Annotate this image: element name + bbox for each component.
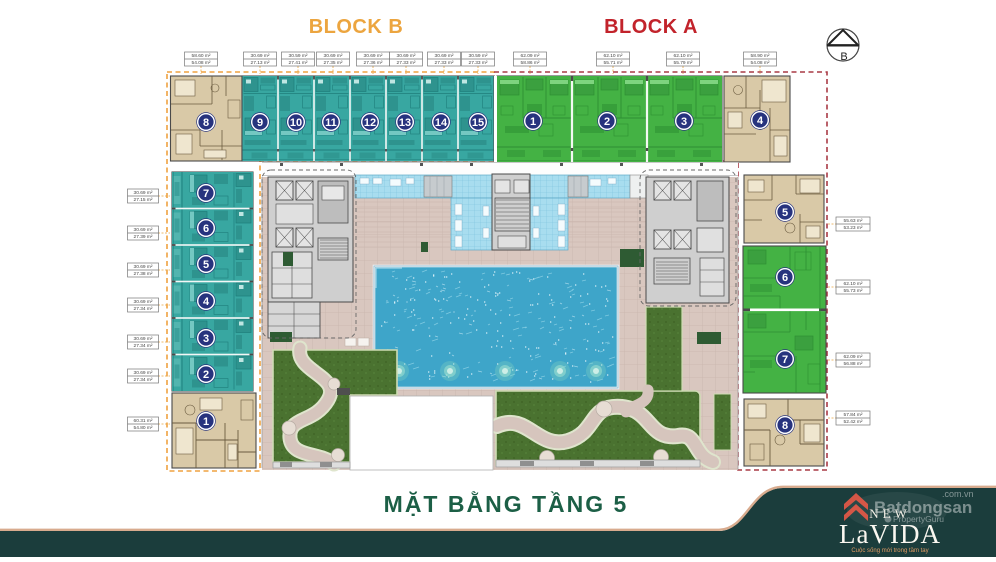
svg-text:62.09 m²: 62.09 m² (844, 354, 863, 360)
svg-text:60.31 m²: 60.31 m² (134, 418, 153, 424)
svg-text:55.71 m²: 55.71 m² (604, 60, 623, 66)
svg-text:27.13 m²: 27.13 m² (251, 60, 270, 66)
svg-text:58.60 m²: 58.60 m² (192, 53, 211, 59)
svg-text:54.80 m²: 54.80 m² (134, 425, 153, 431)
svg-text:56.88 m²: 56.88 m² (844, 361, 863, 367)
svg-text:27.35 m²: 27.35 m² (324, 60, 343, 66)
svg-text:2: 2 (604, 116, 610, 128)
svg-text:1: 1 (530, 116, 536, 128)
svg-text:Cuộc sống mới trong tầm tay: Cuộc sống mới trong tầm tay (851, 548, 928, 554)
svg-text:9: 9 (257, 117, 263, 129)
svg-text:54.08 m²: 54.08 m² (751, 60, 770, 66)
svg-text:2: 2 (203, 369, 209, 381)
svg-text:5: 5 (203, 259, 209, 271)
svg-text:53.23 m²: 53.23 m² (844, 225, 863, 231)
svg-text:4: 4 (203, 296, 210, 308)
svg-text:12: 12 (364, 117, 376, 129)
svg-text:6: 6 (203, 223, 209, 235)
svg-text:10: 10 (290, 117, 302, 129)
svg-text:30.69 m²: 30.69 m² (134, 190, 153, 196)
svg-text:4: 4 (757, 115, 764, 127)
svg-text:7: 7 (782, 354, 788, 366)
svg-text:57.84 m²: 57.84 m² (844, 412, 863, 418)
svg-text:14: 14 (435, 117, 448, 129)
svg-text:55.73 m²: 55.73 m² (844, 288, 863, 294)
svg-text:3: 3 (203, 333, 209, 345)
svg-text:30.69 m²: 30.69 m² (251, 53, 270, 59)
svg-text:27.41 m²: 27.41 m² (289, 60, 308, 66)
svg-text:LaVIDA: LaVIDA (839, 519, 941, 549)
svg-text:27.15 m²: 27.15 m² (134, 197, 153, 203)
svg-text:27.38 m²: 27.38 m² (134, 271, 153, 277)
svg-text:15: 15 (472, 117, 484, 129)
svg-text:30.69 m²: 30.69 m² (397, 53, 416, 59)
svg-text:30.69 m²: 30.69 m² (324, 53, 343, 59)
svg-text:62.10 m²: 62.10 m² (674, 53, 693, 59)
svg-text:BLOCK B: BLOCK B (309, 16, 404, 38)
svg-text:54.08 m²: 54.08 m² (192, 60, 211, 66)
svg-text:58.86 m²: 58.86 m² (521, 60, 540, 66)
svg-text:8: 8 (203, 117, 209, 129)
svg-text:27.34 m²: 27.34 m² (134, 377, 153, 383)
svg-text:30.59 m²: 30.59 m² (469, 53, 488, 59)
svg-text:7: 7 (203, 188, 209, 200)
svg-text:30.69 m²: 30.69 m² (435, 53, 454, 59)
svg-text:13: 13 (399, 117, 411, 129)
svg-text:30.69 m²: 30.69 m² (364, 53, 383, 59)
svg-text:27.33 m²: 27.33 m² (435, 60, 454, 66)
svg-text:B: B (840, 51, 847, 63)
svg-text:30.59 m²: 30.59 m² (289, 53, 308, 59)
svg-text:27.33 m²: 27.33 m² (469, 60, 488, 66)
svg-text:55.79 m²: 55.79 m² (674, 60, 693, 66)
svg-text:27.34 m²: 27.34 m² (134, 306, 153, 312)
svg-text:62.10 m²: 62.10 m² (844, 281, 863, 287)
svg-text:27.39 m²: 27.39 m² (134, 234, 153, 240)
svg-text:30.69 m²: 30.69 m² (134, 227, 153, 233)
svg-text:1: 1 (203, 416, 209, 428)
svg-text:8: 8 (782, 420, 788, 432)
svg-text:3: 3 (681, 116, 687, 128)
svg-text:30.69 m²: 30.69 m² (134, 336, 153, 342)
svg-text:62.10 m²: 62.10 m² (604, 53, 623, 59)
svg-text:27.34 m²: 27.34 m² (134, 343, 153, 349)
svg-text:30.69 m²: 30.69 m² (134, 264, 153, 270)
svg-text:5: 5 (782, 207, 788, 219)
svg-text:.com.vn: .com.vn (942, 489, 974, 499)
svg-text:6: 6 (782, 272, 788, 284)
svg-text:55.63 m²: 55.63 m² (844, 218, 863, 224)
svg-text:11: 11 (325, 117, 337, 129)
svg-text:27.36 m²: 27.36 m² (364, 60, 383, 66)
svg-text:MẶT BẰNG TẦNG 5: MẶT BẰNG TẦNG 5 (384, 490, 629, 517)
svg-text:30.69 m²: 30.69 m² (134, 370, 153, 376)
svg-text:27.33 m²: 27.33 m² (397, 60, 416, 66)
svg-text:62.09 m²: 62.09 m² (521, 53, 540, 59)
svg-text:52.42 m²: 52.42 m² (844, 419, 863, 425)
svg-text:30.69 m²: 30.69 m² (134, 299, 153, 305)
svg-text:BLOCK A: BLOCK A (604, 16, 698, 38)
svg-text:58.90 m²: 58.90 m² (751, 53, 770, 59)
